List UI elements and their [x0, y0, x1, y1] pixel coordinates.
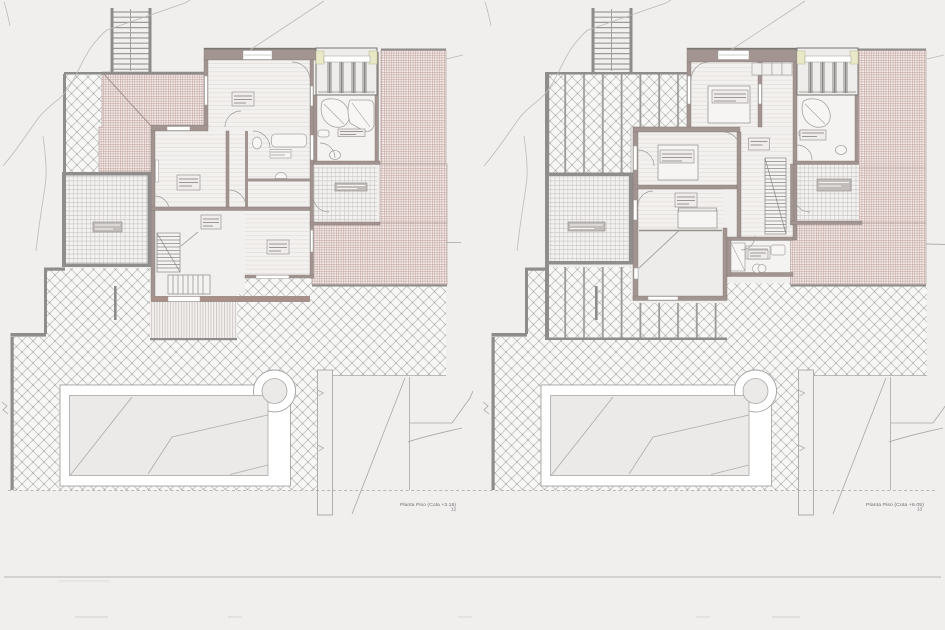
svg-text:Planta Piso (Cota +6.05): Planta Piso (Cota +6.05) [866, 502, 925, 507]
svg-text:13: 13 [917, 507, 923, 512]
svg-text:12: 12 [451, 507, 457, 512]
svg-text:Planta Piso (Cota +3.15): Planta Piso (Cota +3.15) [400, 502, 457, 507]
